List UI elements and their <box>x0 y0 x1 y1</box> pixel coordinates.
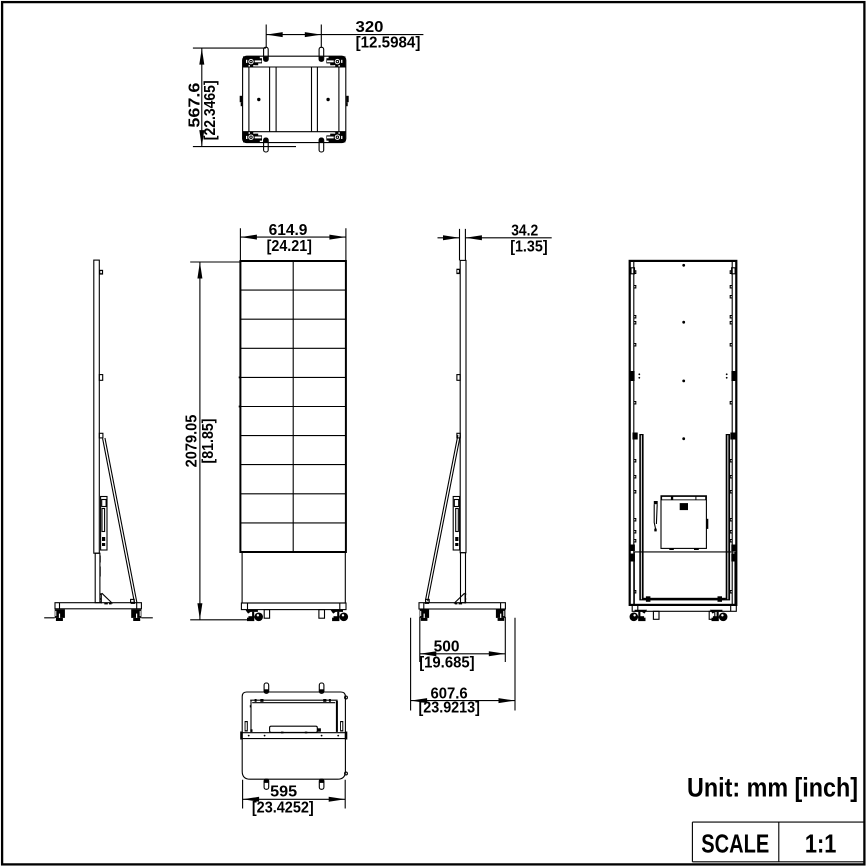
svg-text:500: 500 <box>434 639 460 656</box>
svg-text:[12.5984]: [12.5984] <box>356 35 421 52</box>
svg-text:[19.685]: [19.685] <box>419 655 474 672</box>
svg-text:[23.9213]: [23.9213] <box>418 700 480 717</box>
svg-text:SCALE: SCALE <box>701 831 769 859</box>
svg-text:595: 595 <box>270 784 297 801</box>
svg-text:Unit: mm [inch]: Unit: mm [inch] <box>687 773 858 803</box>
svg-text:2079.05: 2079.05 <box>184 414 201 467</box>
svg-text:[23.4252]: [23.4252] <box>252 800 314 817</box>
svg-text:[81.85]: [81.85] <box>200 419 217 464</box>
svg-text:[24.21]: [24.21] <box>267 238 312 255</box>
svg-text:1:1: 1:1 <box>805 831 837 859</box>
svg-text:[1.35]: [1.35] <box>510 238 547 255</box>
svg-text:614.9: 614.9 <box>269 222 308 239</box>
svg-text:[22.3465]: [22.3465] <box>202 80 219 140</box>
svg-text:320: 320 <box>356 19 384 36</box>
svg-text:34.2: 34.2 <box>511 222 538 239</box>
